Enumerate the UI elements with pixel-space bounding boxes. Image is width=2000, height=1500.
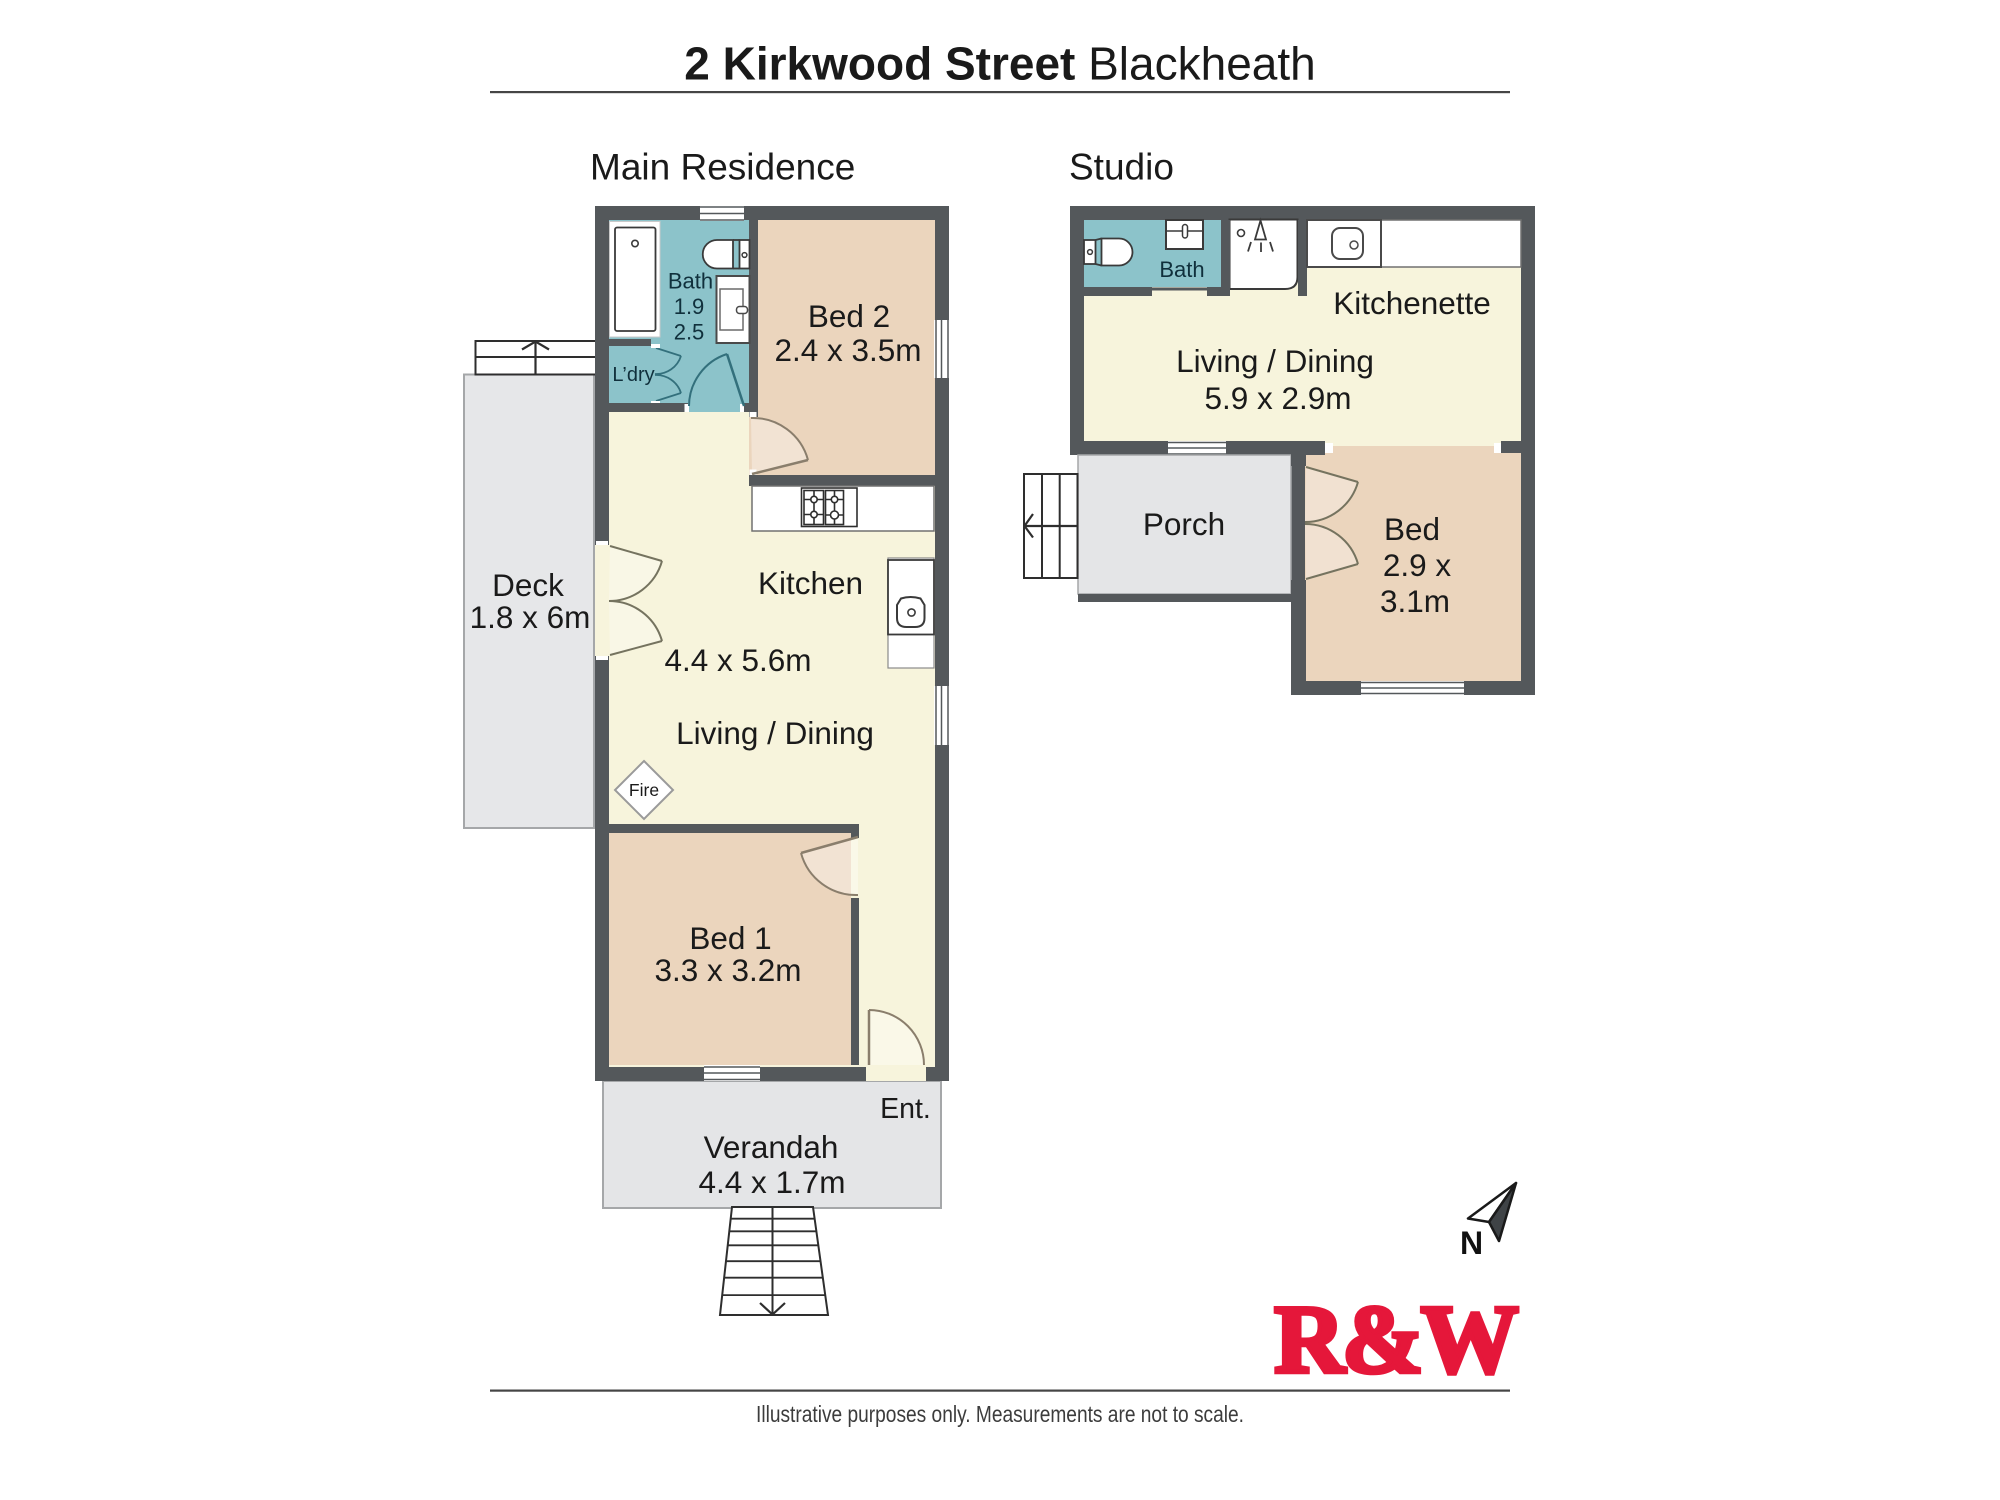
svg-text:Living / Dining: Living / Dining <box>676 715 874 751</box>
svg-text:Bath: Bath <box>668 269 713 294</box>
svg-text:3.3 x 3.2m: 3.3 x 3.2m <box>654 952 801 988</box>
svg-text:Bath: Bath <box>1159 257 1204 282</box>
svg-text:4.4 x 5.6m: 4.4 x 5.6m <box>664 642 811 678</box>
svg-text:1.8 x 6m: 1.8 x 6m <box>470 599 591 635</box>
svg-text:Porch: Porch <box>1143 506 1225 542</box>
svg-text:Kitchen: Kitchen <box>758 565 863 601</box>
svg-text:4.4 x 1.7m: 4.4 x 1.7m <box>698 1164 845 1200</box>
svg-text:2.9 x: 2.9 x <box>1383 547 1452 583</box>
svg-text:Living / Dining: Living / Dining <box>1176 343 1374 379</box>
svg-text:Main Residence: Main Residence <box>590 147 855 188</box>
svg-text:Verandah: Verandah <box>704 1129 839 1165</box>
svg-text:3.1m: 3.1m <box>1380 583 1450 619</box>
svg-text:Ent.: Ent. <box>880 1093 931 1125</box>
svg-text:L’dry: L’dry <box>612 364 654 386</box>
svg-text:5.9 x 2.9m: 5.9 x 2.9m <box>1204 380 1351 416</box>
svg-text:Kitchenette: Kitchenette <box>1333 285 1491 321</box>
svg-text:Bed 2: Bed 2 <box>808 298 890 334</box>
svg-text:2.5: 2.5 <box>674 320 705 345</box>
svg-text:Deck: Deck <box>492 567 564 603</box>
svg-text:2.4 x 3.5m: 2.4 x 3.5m <box>774 332 921 368</box>
svg-text:Studio: Studio <box>1069 147 1174 188</box>
svg-text:R&W: R&W <box>1274 1286 1517 1394</box>
svg-text:Bed 1: Bed 1 <box>689 920 771 956</box>
svg-text:1.9: 1.9 <box>674 294 705 319</box>
svg-text:Fire: Fire <box>629 780 659 800</box>
svg-text:Bed: Bed <box>1384 511 1440 547</box>
svg-text:2 Kirkwood Street Blackheath: 2 Kirkwood Street Blackheath <box>684 38 1315 90</box>
svg-text:N: N <box>1460 1225 1483 1261</box>
svg-text:Illustrative purposes only. Me: Illustrative purposes only. Measurements… <box>756 1401 1244 1427</box>
